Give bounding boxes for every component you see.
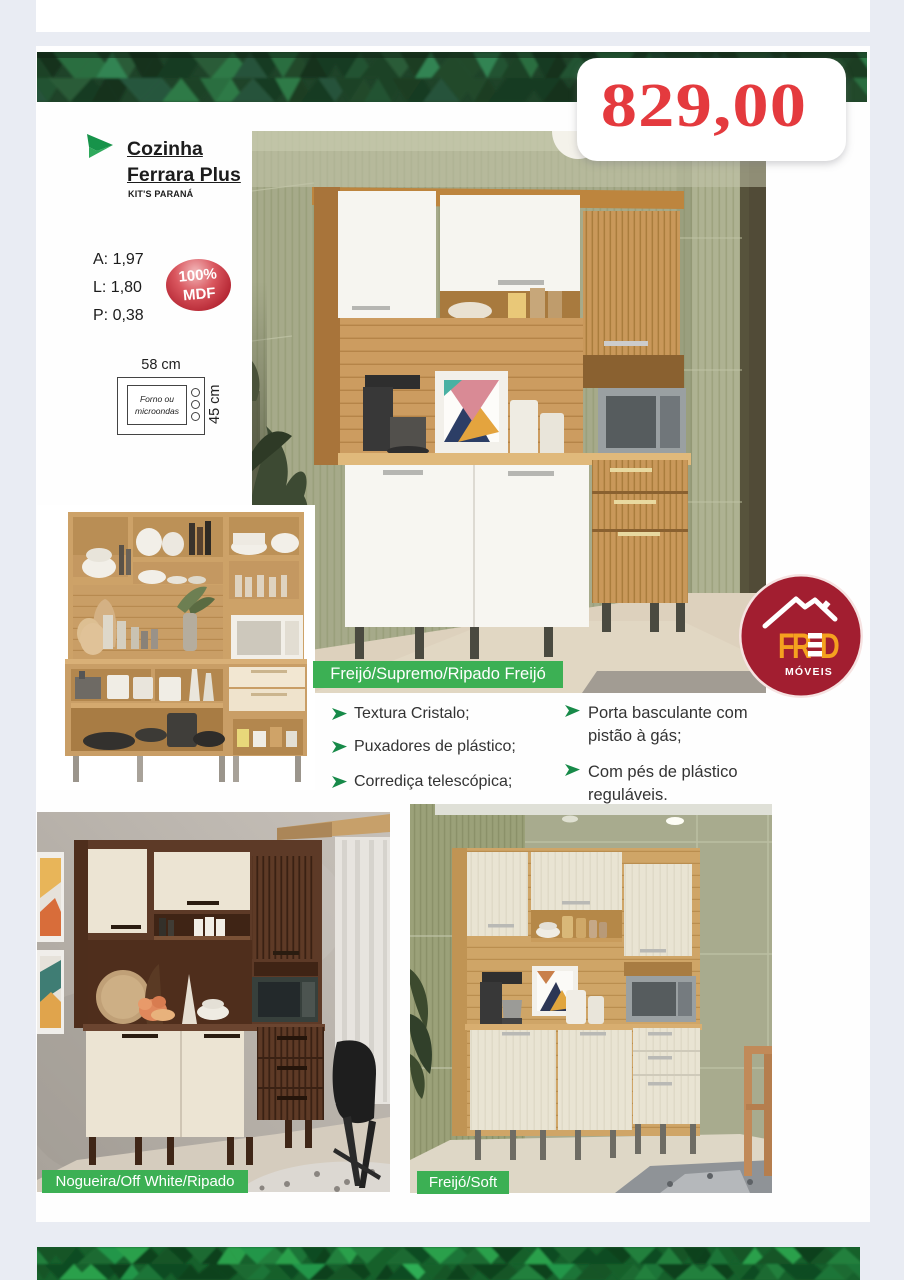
svg-text:MÓVEIS: MÓVEIS [785,665,833,678]
svg-text:D: D [820,627,840,666]
